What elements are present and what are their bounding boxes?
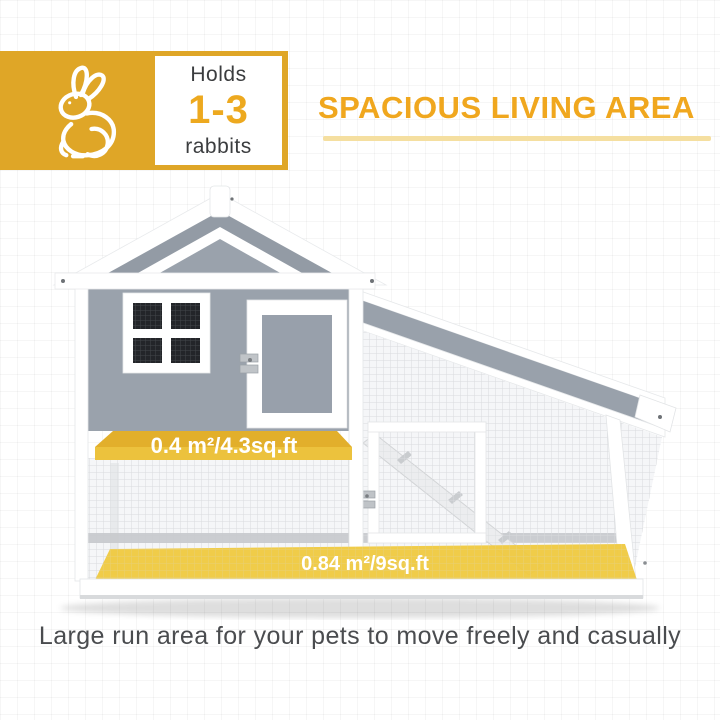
ridge-cap xyxy=(210,186,230,217)
bottom-beam-shade xyxy=(80,595,643,599)
gable-roof xyxy=(54,186,386,289)
ridge-screw xyxy=(230,197,233,200)
capacity-value: 1-3 xyxy=(188,90,249,130)
page-title: SPACIOUS LIVING AREA xyxy=(318,90,714,126)
house-right-post xyxy=(349,289,363,581)
post-screw xyxy=(643,561,647,565)
rabbit-hutch-image: 0.4 m²/4.3sq.ft 0.84 m²/9sq.ft xyxy=(40,185,700,645)
capacity-badge: Holds 1-3 rabbits xyxy=(0,51,288,170)
headline-underline xyxy=(323,136,711,141)
house-back-rail xyxy=(87,533,352,543)
house-door xyxy=(240,300,347,428)
capacity-label-bottom: rabbits xyxy=(185,136,252,157)
house-left-post xyxy=(75,275,88,581)
rabbit-icon xyxy=(26,60,126,162)
eave-screw-left xyxy=(61,279,65,283)
capacity-card: Holds 1-3 rabbits xyxy=(155,56,282,165)
lower-floor-label: 0.84 m²/9sq.ft xyxy=(301,553,429,575)
house-section: 0.4 m²/4.3sq.ft xyxy=(54,186,386,581)
eave-screw-right xyxy=(370,279,374,283)
caption-text: Large run area for your pets to move fre… xyxy=(0,622,720,651)
hutch-shadow xyxy=(60,598,660,618)
run-section xyxy=(352,288,676,581)
house-window xyxy=(123,293,210,373)
roof-screw xyxy=(658,415,662,419)
run-floor-highlight: 0.84 m²/9sq.ft xyxy=(95,544,637,580)
capacity-label-top: Holds xyxy=(190,64,246,85)
product-infographic: { "badge": { "icon": "rabbit-icon", "lin… xyxy=(0,0,720,720)
upper-floor-label: 0.4 m²/4.3sq.ft xyxy=(151,433,298,458)
upper-floor-banner: 0.4 m²/4.3sq.ft xyxy=(95,431,352,460)
